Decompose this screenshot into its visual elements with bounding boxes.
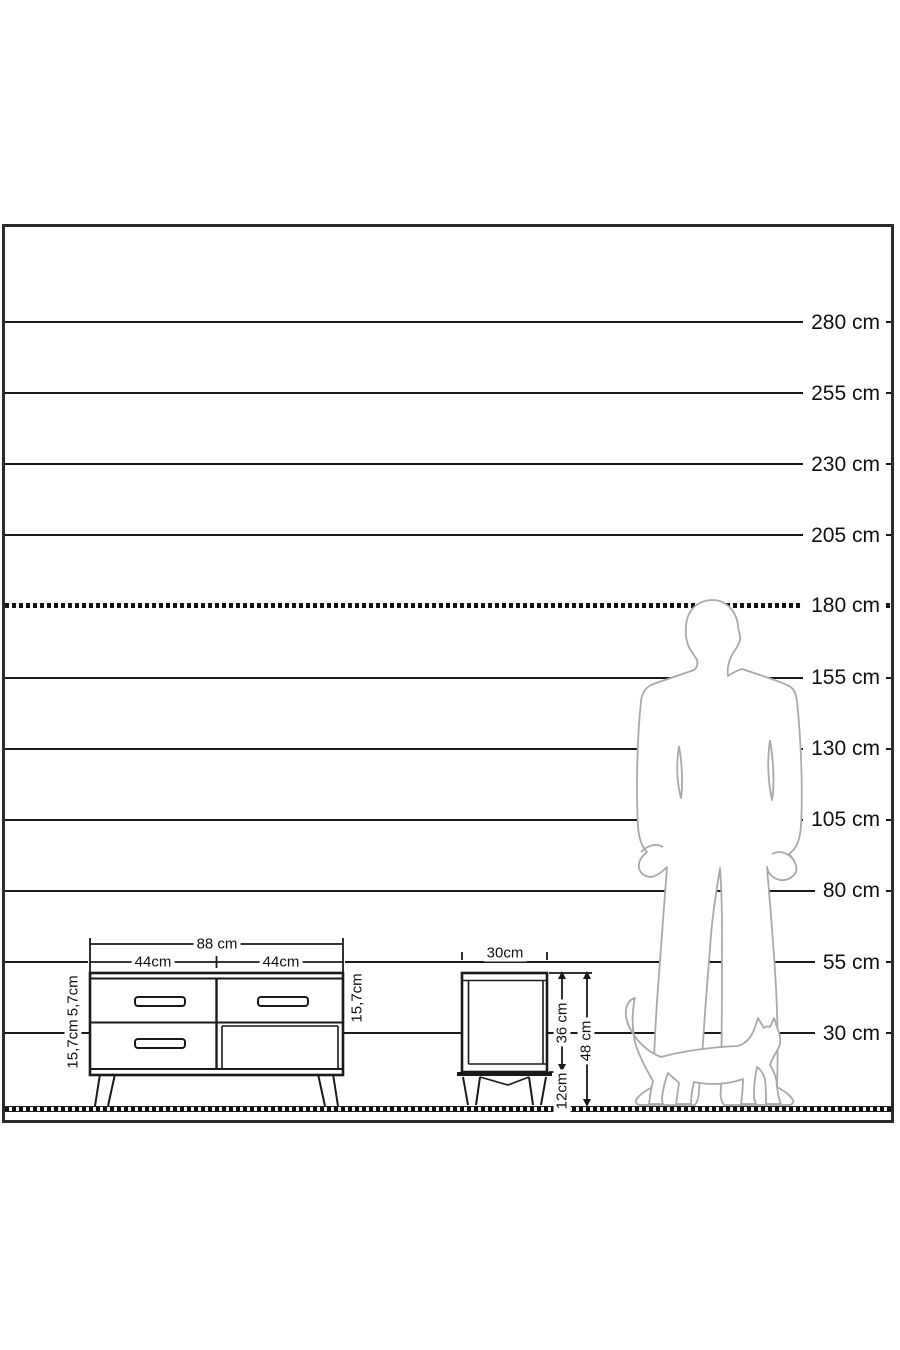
height-line-155: 155 cm: [5, 667, 891, 688]
dresser-right-half-label: 44cm: [260, 954, 303, 971]
height-line-label: 230 cm: [811, 454, 880, 475]
height-line-205: 205 cm: [5, 525, 891, 546]
nightstand-total-height-label: 48 cm: [578, 1018, 595, 1065]
height-line-80: 80 cm: [5, 880, 891, 901]
height-line-segment: [5, 961, 815, 963]
height-line-segment: [5, 534, 803, 536]
height-line-segment: [5, 603, 803, 608]
height-line-segment: [5, 748, 803, 750]
height-line-segment: [5, 321, 803, 323]
height-line-label: 30 cm: [823, 1023, 880, 1044]
height-line-label: 180 cm: [811, 595, 880, 616]
dresser-left-half-label: 44cm: [132, 954, 175, 971]
height-chart-area: 280 cm255 cm230 cm205 cm180 cm155 cm130 …: [2, 224, 894, 1123]
height-line-stub: [886, 534, 891, 536]
height-line-segment: [5, 890, 815, 892]
height-line-stub: [886, 890, 891, 892]
height-line-stub: [886, 748, 891, 750]
height-line-stub: [886, 603, 891, 608]
height-line-label: 80 cm: [823, 880, 880, 901]
height-line-105: 105 cm: [5, 809, 891, 830]
height-line-segment: [5, 392, 803, 394]
height-line-label: 205 cm: [811, 525, 880, 546]
height-line-180: 180 cm: [5, 595, 891, 616]
drawer-height-label-left-bottom: 15,7cm: [65, 1016, 82, 1071]
height-line-30: 30 cm: [5, 1023, 891, 1044]
height-line-segment: [5, 819, 803, 821]
height-line-130: 130 cm: [5, 738, 891, 759]
floor-line: [5, 1106, 891, 1112]
drawer-height-label-right: 15,7cm: [349, 970, 366, 1025]
height-line-stub: [886, 463, 891, 465]
height-line-label: 155 cm: [811, 667, 880, 688]
nightstand-body-height-label: 36 cm: [554, 1000, 571, 1047]
nightstand-leg-height-label: 12cm: [554, 1070, 571, 1113]
height-line-280: 280 cm: [5, 312, 891, 333]
height-line-segment: [5, 677, 803, 679]
height-line-segment: [5, 463, 803, 465]
height-line-segment: [5, 1032, 815, 1034]
height-line-label: 105 cm: [811, 809, 880, 830]
height-line-stub: [886, 961, 891, 963]
height-line-stub: [886, 392, 891, 394]
nightstand-width-label: 30cm: [484, 945, 527, 962]
height-line-stub: [886, 321, 891, 323]
height-line-label: 280 cm: [811, 312, 880, 333]
height-line-stub: [886, 677, 891, 679]
height-line-label: 255 cm: [811, 383, 880, 404]
height-line-stub: [886, 819, 891, 821]
height-line-label: 55 cm: [823, 952, 880, 973]
dresser-width-label: 88 cm: [194, 936, 241, 953]
height-line-label: 130 cm: [811, 738, 880, 759]
height-line-stub: [886, 1032, 891, 1034]
furniture-scale-diagram: 280 cm255 cm230 cm205 cm180 cm155 cm130 …: [0, 0, 900, 1350]
height-line-230: 230 cm: [5, 454, 891, 475]
height-line-255: 255 cm: [5, 383, 891, 404]
